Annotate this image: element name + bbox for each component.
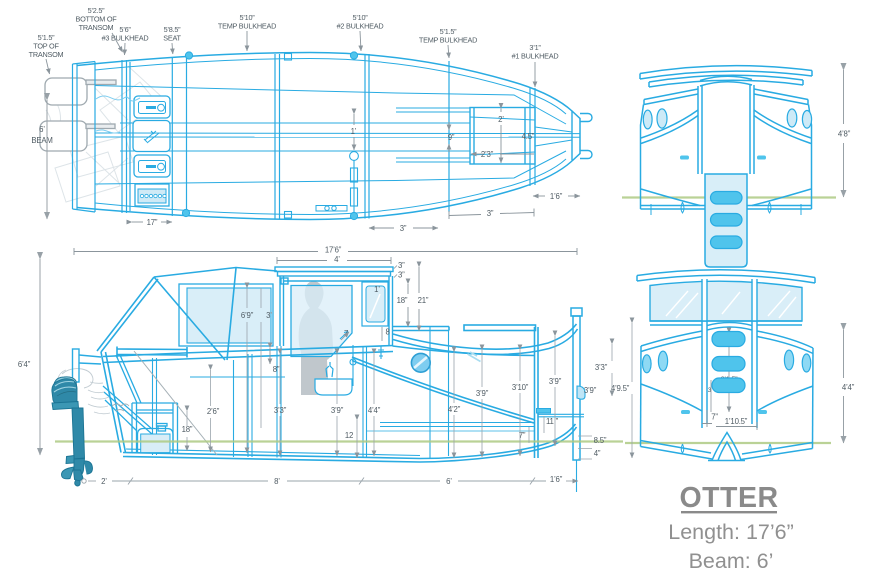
svg-text:3”: 3” [487,209,494,218]
svg-text:3”: 3” [398,271,405,280]
svg-text:TEMP BULKHEAD: TEMP BULKHEAD [419,36,477,45]
svg-text:7”: 7” [711,413,718,422]
svg-text:OTTER: OTTER [679,482,778,514]
svg-text:17’6”: 17’6” [325,246,342,255]
svg-text:4.5”: 4.5” [522,132,535,141]
svg-text:1’10.5”: 1’10.5” [725,417,748,426]
svg-text:1’: 1’ [351,127,357,136]
svg-text:#1 BULKHEAD: #1 BULKHEAD [512,52,559,61]
svg-text:17”: 17” [147,218,158,227]
svg-text:Length: 17’6”: Length: 17’6” [668,520,794,544]
svg-text:21”: 21” [418,296,429,305]
svg-text:SEAT: SEAT [163,34,181,43]
svg-text:8: 8 [386,328,390,337]
svg-text:3’9”: 3’9” [331,406,344,415]
svg-text:3’9”: 3’9” [476,389,489,398]
svg-text:1’6”: 1’6” [550,192,563,201]
svg-text:1’6”: 1’6” [550,475,563,484]
svg-text:3’3”: 3’3” [595,363,608,372]
svg-text:TRANSOM: TRANSOM [79,23,114,32]
svg-text:3”: 3” [400,224,407,233]
svg-text:6’: 6’ [446,477,452,486]
svg-text:4’8”: 4’8” [838,130,851,139]
svg-text:3’9”: 3’9” [549,377,562,386]
svg-text:Beam: 6’: Beam: 6’ [689,549,774,573]
svg-text:4’: 4’ [334,255,340,264]
svg-text:4’4”: 4’4” [368,406,381,415]
svg-text:4’2”: 4’2” [448,405,461,414]
svg-text:12: 12 [345,431,353,440]
svg-text:2’: 2’ [101,477,107,486]
svg-text:#3 BULKHEAD: #3 BULKHEAD [102,34,149,43]
svg-text:#2 BULKHEAD: #2 BULKHEAD [337,22,384,31]
svg-text:1’: 1’ [374,285,380,294]
svg-text:2’6”: 2’6” [207,407,220,416]
svg-text:2’3”: 2’3” [481,150,494,159]
svg-text:18”: 18” [182,425,193,434]
svg-text:4’9.5”: 4’9.5” [611,384,630,393]
svg-text:6’9”: 6’9” [241,311,254,320]
svg-text:8.5”: 8.5” [594,436,607,445]
svg-text:3: 3 [708,387,712,394]
svg-text:8’: 8’ [274,477,280,486]
svg-text:2’: 2’ [498,115,504,124]
svg-text:3’10”: 3’10” [512,383,529,392]
svg-text:4’4”: 4’4” [842,383,855,392]
svg-text:9”: 9” [448,133,455,142]
svg-text:TRANSOM: TRANSOM [29,50,64,59]
svg-text:6’4”: 6’4” [18,360,31,369]
svg-text:3’: 3’ [266,311,272,320]
svg-text:18”: 18” [397,296,408,305]
svg-text:BEAM: BEAM [31,136,52,145]
svg-text:3’9”: 3’9” [584,386,597,395]
svg-text:8”: 8” [273,365,280,374]
svg-text:11 ”: 11 ” [546,417,559,426]
svg-text:4”: 4” [594,449,601,458]
svg-text:TEMP BULKHEAD: TEMP BULKHEAD [218,22,276,31]
svg-text:3”: 3” [398,261,405,270]
svg-text:3’3”: 3’3” [274,406,287,415]
svg-text:6’: 6’ [39,125,45,134]
